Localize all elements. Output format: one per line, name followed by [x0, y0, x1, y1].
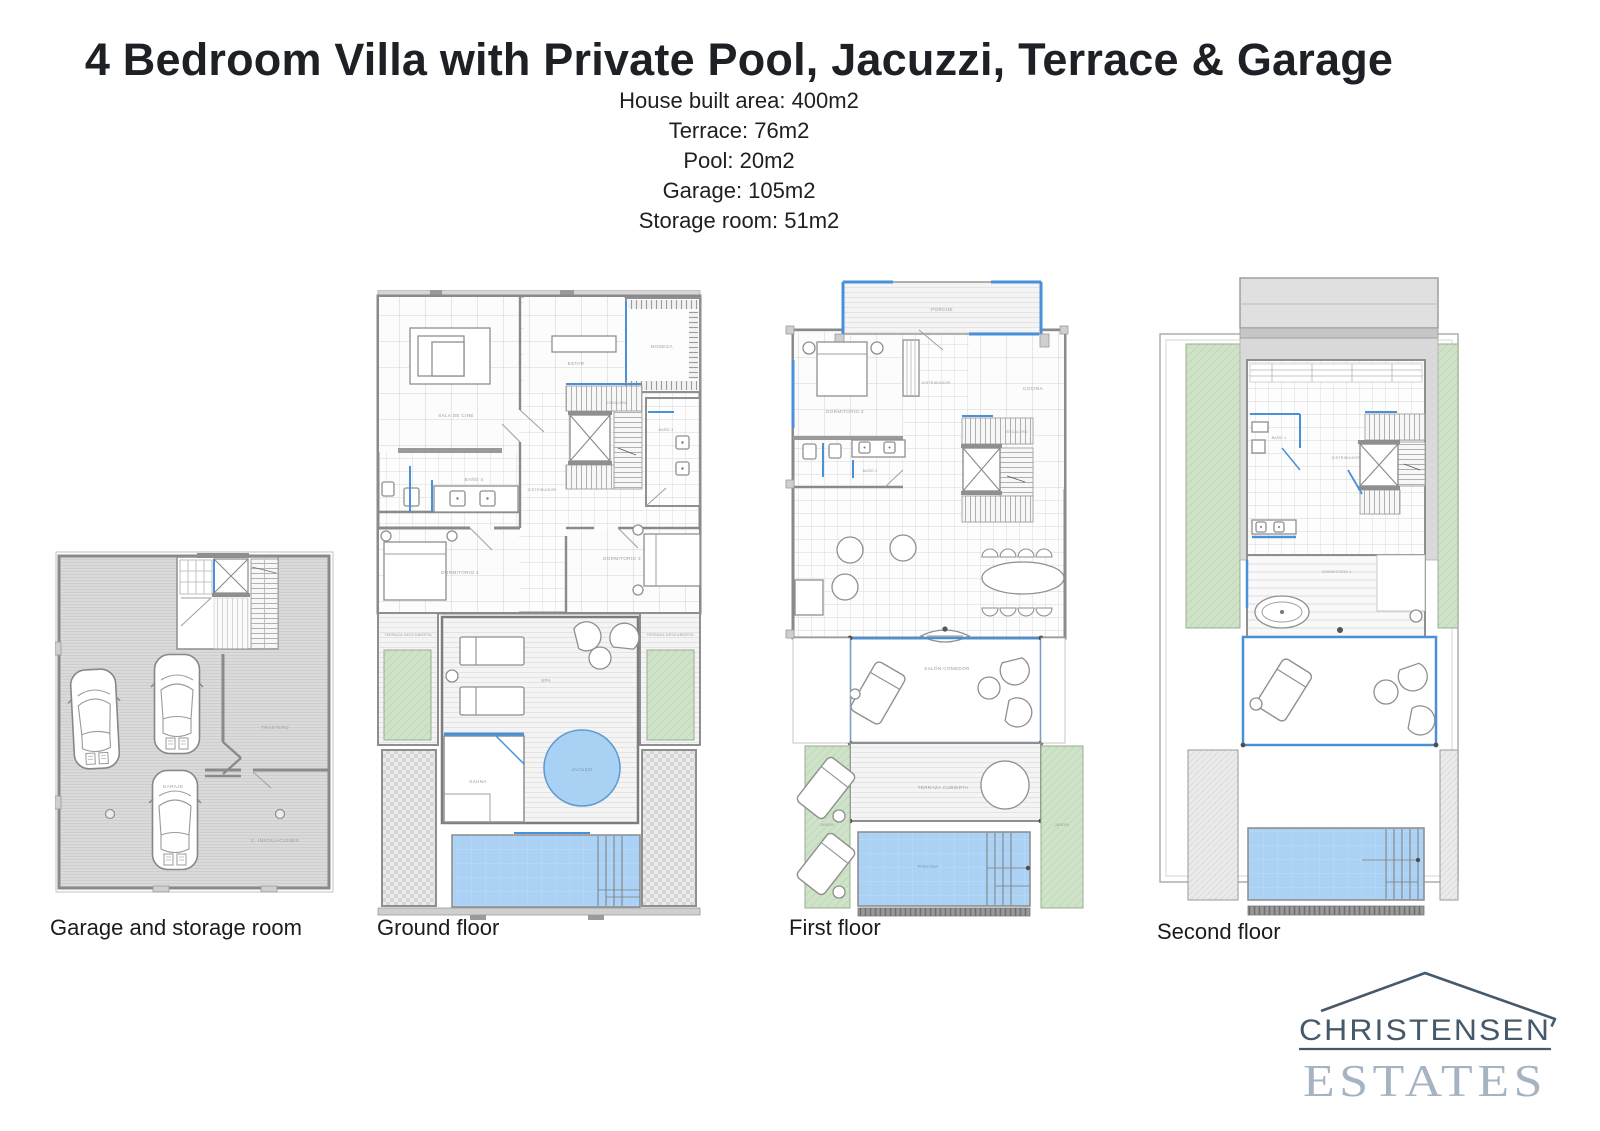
spec-built-area: House built area: 400m2: [0, 86, 1478, 116]
room-label-distribuidor: DISTRIBUIDOR: [528, 488, 557, 492]
logo-name: CHRISTENSEN: [1299, 1014, 1551, 1047]
room-label-bano3: BAÑO 3: [659, 427, 674, 432]
room-label-garaje: GARAJE: [163, 784, 183, 789]
side-table-icon: [833, 886, 845, 898]
gravel-area: [382, 750, 436, 906]
garage-floor-plan: GARAJE TRASTERO C. INSTALACIONES: [55, 546, 335, 898]
master-bedroom: [1247, 555, 1425, 645]
room-label-bano4: BAÑO 4: [465, 476, 484, 482]
logo-type: ESTATES: [1303, 1056, 1547, 1106]
armchair-icon: [995, 651, 1035, 691]
stairs-icon: [1398, 442, 1425, 486]
upper-terrace: [1241, 637, 1441, 747]
room-label-jardin-izq: JARDÍN: [820, 823, 835, 827]
caption-second: Second floor: [1157, 919, 1281, 945]
massage-bed-icon: [460, 687, 524, 715]
room-label-cocina: COCINA: [1023, 386, 1044, 391]
room-label-bano1: BAÑO 1: [1272, 435, 1287, 440]
garden-patch: [647, 650, 694, 740]
stool-icon: [1410, 610, 1422, 622]
wall-nub: [588, 915, 604, 920]
agency-logo: CHRISTENSEN ESTATES: [1283, 960, 1573, 1117]
room-label-jardin-der: JARDÍN: [1055, 823, 1070, 827]
toilet-icon: [404, 488, 419, 506]
room-label-terraza: TERRAZA CUBIERTA: [918, 785, 969, 790]
armchair-icon: [997, 692, 1037, 732]
room-label-terraza-der: TERRAZA DESCUBIERTA: [646, 633, 694, 637]
caption-garage: Garage and storage room: [50, 915, 302, 941]
room-label-dormitorio1: DORMITORIO 1: [1322, 570, 1351, 574]
car-icon: [151, 655, 203, 754]
bathtub-icon: [1255, 596, 1309, 628]
roof-garden-left: [1186, 344, 1240, 628]
toilet-icon: [803, 444, 816, 459]
room-label-sala-cine: SALA DE CINE: [438, 413, 474, 418]
room-label-bodega: BODEGA: [651, 344, 673, 349]
covered-terrace: [848, 743, 1044, 823]
round-table-icon: [890, 535, 916, 561]
ground-stair-core: [566, 384, 642, 489]
wall-nub: [786, 480, 794, 488]
stairs-icon: [566, 386, 642, 411]
header: 4 Bedroom Villa with Private Pool, Jacuz…: [0, 0, 1478, 236]
side-table-icon: [1374, 680, 1398, 704]
wardrobe-icon: [1250, 364, 1422, 382]
stairs-icon: [962, 496, 1033, 522]
caption-ground: Ground floor: [377, 915, 499, 941]
room-label-bano2: BAÑO 2: [863, 468, 878, 473]
room-label-dormitorio4: DORMITORIO 4: [441, 570, 479, 575]
room-label-escalera: ESCALERA: [1006, 430, 1028, 434]
wall-nub: [1060, 326, 1068, 334]
toilet-icon: [829, 444, 841, 458]
first-floor-plan: PORCHE DORMITORIO 2 DISTRIBUIDOR COCINA …: [773, 280, 1085, 930]
garden-left: [795, 746, 856, 908]
dressing-area: [1377, 555, 1425, 611]
wall-nub: [261, 886, 277, 892]
pool-grate: [858, 908, 1030, 916]
column-icon: [106, 810, 115, 819]
dining-table-icon: [982, 562, 1064, 594]
sofa-icon: [410, 328, 490, 384]
room-label-escalera: ESCALERA: [606, 401, 628, 405]
stairs-icon: [1360, 490, 1400, 514]
toilet-icon: [1252, 422, 1268, 432]
stool-icon: [1250, 698, 1262, 710]
sink-icon: [1252, 440, 1265, 453]
room-label-instalaciones: C. INSTALACIONES: [251, 838, 299, 843]
second-floor-plan: BAÑO 1 DISTRIBUIDOR DORMITORIO 1: [1152, 272, 1466, 924]
wall-nub: [55, 796, 61, 809]
column-icon: [276, 810, 285, 819]
garden-right: [1041, 746, 1083, 908]
second-pool: [1248, 828, 1424, 915]
sideboard-icon: [795, 580, 823, 615]
room-label-piscina: PISCINA: [918, 864, 939, 869]
room-label-sauna: SAUNA: [469, 779, 487, 784]
room-label-terraza-izq: TERRAZA DESCUBIERTA: [384, 633, 432, 637]
ground-floor-plan: SALA DE CINE ESTAR BODEGA ESCALERA BAÑO …: [374, 290, 706, 935]
spec-storage: Storage room: 51m2: [0, 206, 1478, 236]
massage-bed-icon: [460, 637, 524, 665]
bathroom3: [646, 398, 700, 506]
stool-icon: [446, 670, 458, 682]
side-deck: [1188, 750, 1238, 900]
spec-pool: Pool: 20m2: [0, 146, 1478, 176]
round-table-icon: [832, 574, 858, 600]
vanity-counter: [434, 486, 518, 512]
pool-grate: [1248, 906, 1424, 915]
wall-nub: [786, 630, 794, 638]
room-label-jacuzzi: JACUZZI: [571, 767, 592, 772]
caption-first: First floor: [789, 915, 881, 941]
side-deck: [1440, 750, 1458, 900]
round-table-icon: [837, 537, 863, 563]
room-label-dormitorio3: DORMITORIO 3: [603, 556, 641, 561]
garage-stair-core: [177, 553, 278, 649]
wall-nub: [786, 326, 794, 334]
room-label-distribuidor: DISTRIBUIDOR: [922, 381, 951, 385]
room-label-spa: SPA: [541, 678, 551, 683]
bed-icon: [817, 342, 867, 396]
wine-rack-icon: [689, 311, 698, 379]
room-label-estar: ESTAR: [568, 361, 585, 366]
stairs-icon: [614, 411, 642, 489]
tv-unit-icon: [552, 336, 616, 352]
wall-nub: [153, 886, 169, 892]
side-table-icon: [978, 677, 1000, 699]
stairs-icon: [566, 465, 614, 489]
toilet-icon: [382, 482, 394, 496]
spec-terrace: Terrace: 76m2: [0, 116, 1478, 146]
gravel-area: [642, 750, 696, 906]
first-pool: [858, 832, 1030, 916]
wine-rack-icon: [628, 300, 698, 309]
stool-icon: [850, 689, 860, 699]
stairs-icon: [1365, 414, 1425, 440]
ground-pool: [452, 833, 640, 907]
wall-nub: [55, 642, 61, 655]
roof-garden-right: [1438, 344, 1458, 628]
stairs-icon: [1000, 448, 1033, 496]
room-label-distribuidor: DISTRIBUIDOR: [1332, 456, 1361, 460]
spec-garage: Garage: 105m2: [0, 176, 1478, 206]
page-title: 4 Bedroom Villa with Private Pool, Jacuz…: [0, 34, 1478, 86]
side-table-icon: [589, 647, 611, 669]
side-table-icon: [833, 810, 845, 822]
round-table-icon: [981, 761, 1029, 809]
car-icon: [66, 668, 123, 770]
base-wall: [378, 908, 700, 915]
garden-patch: [384, 650, 431, 740]
room-label-dormitorio2: DORMITORIO 2: [826, 409, 864, 414]
room-label-salon: SALÓN COMEDOR: [924, 665, 970, 671]
room-label-trastero: TRASTERO: [261, 725, 289, 730]
room-label-porche: PORCHE: [931, 307, 953, 312]
spa-room: [442, 616, 645, 823]
